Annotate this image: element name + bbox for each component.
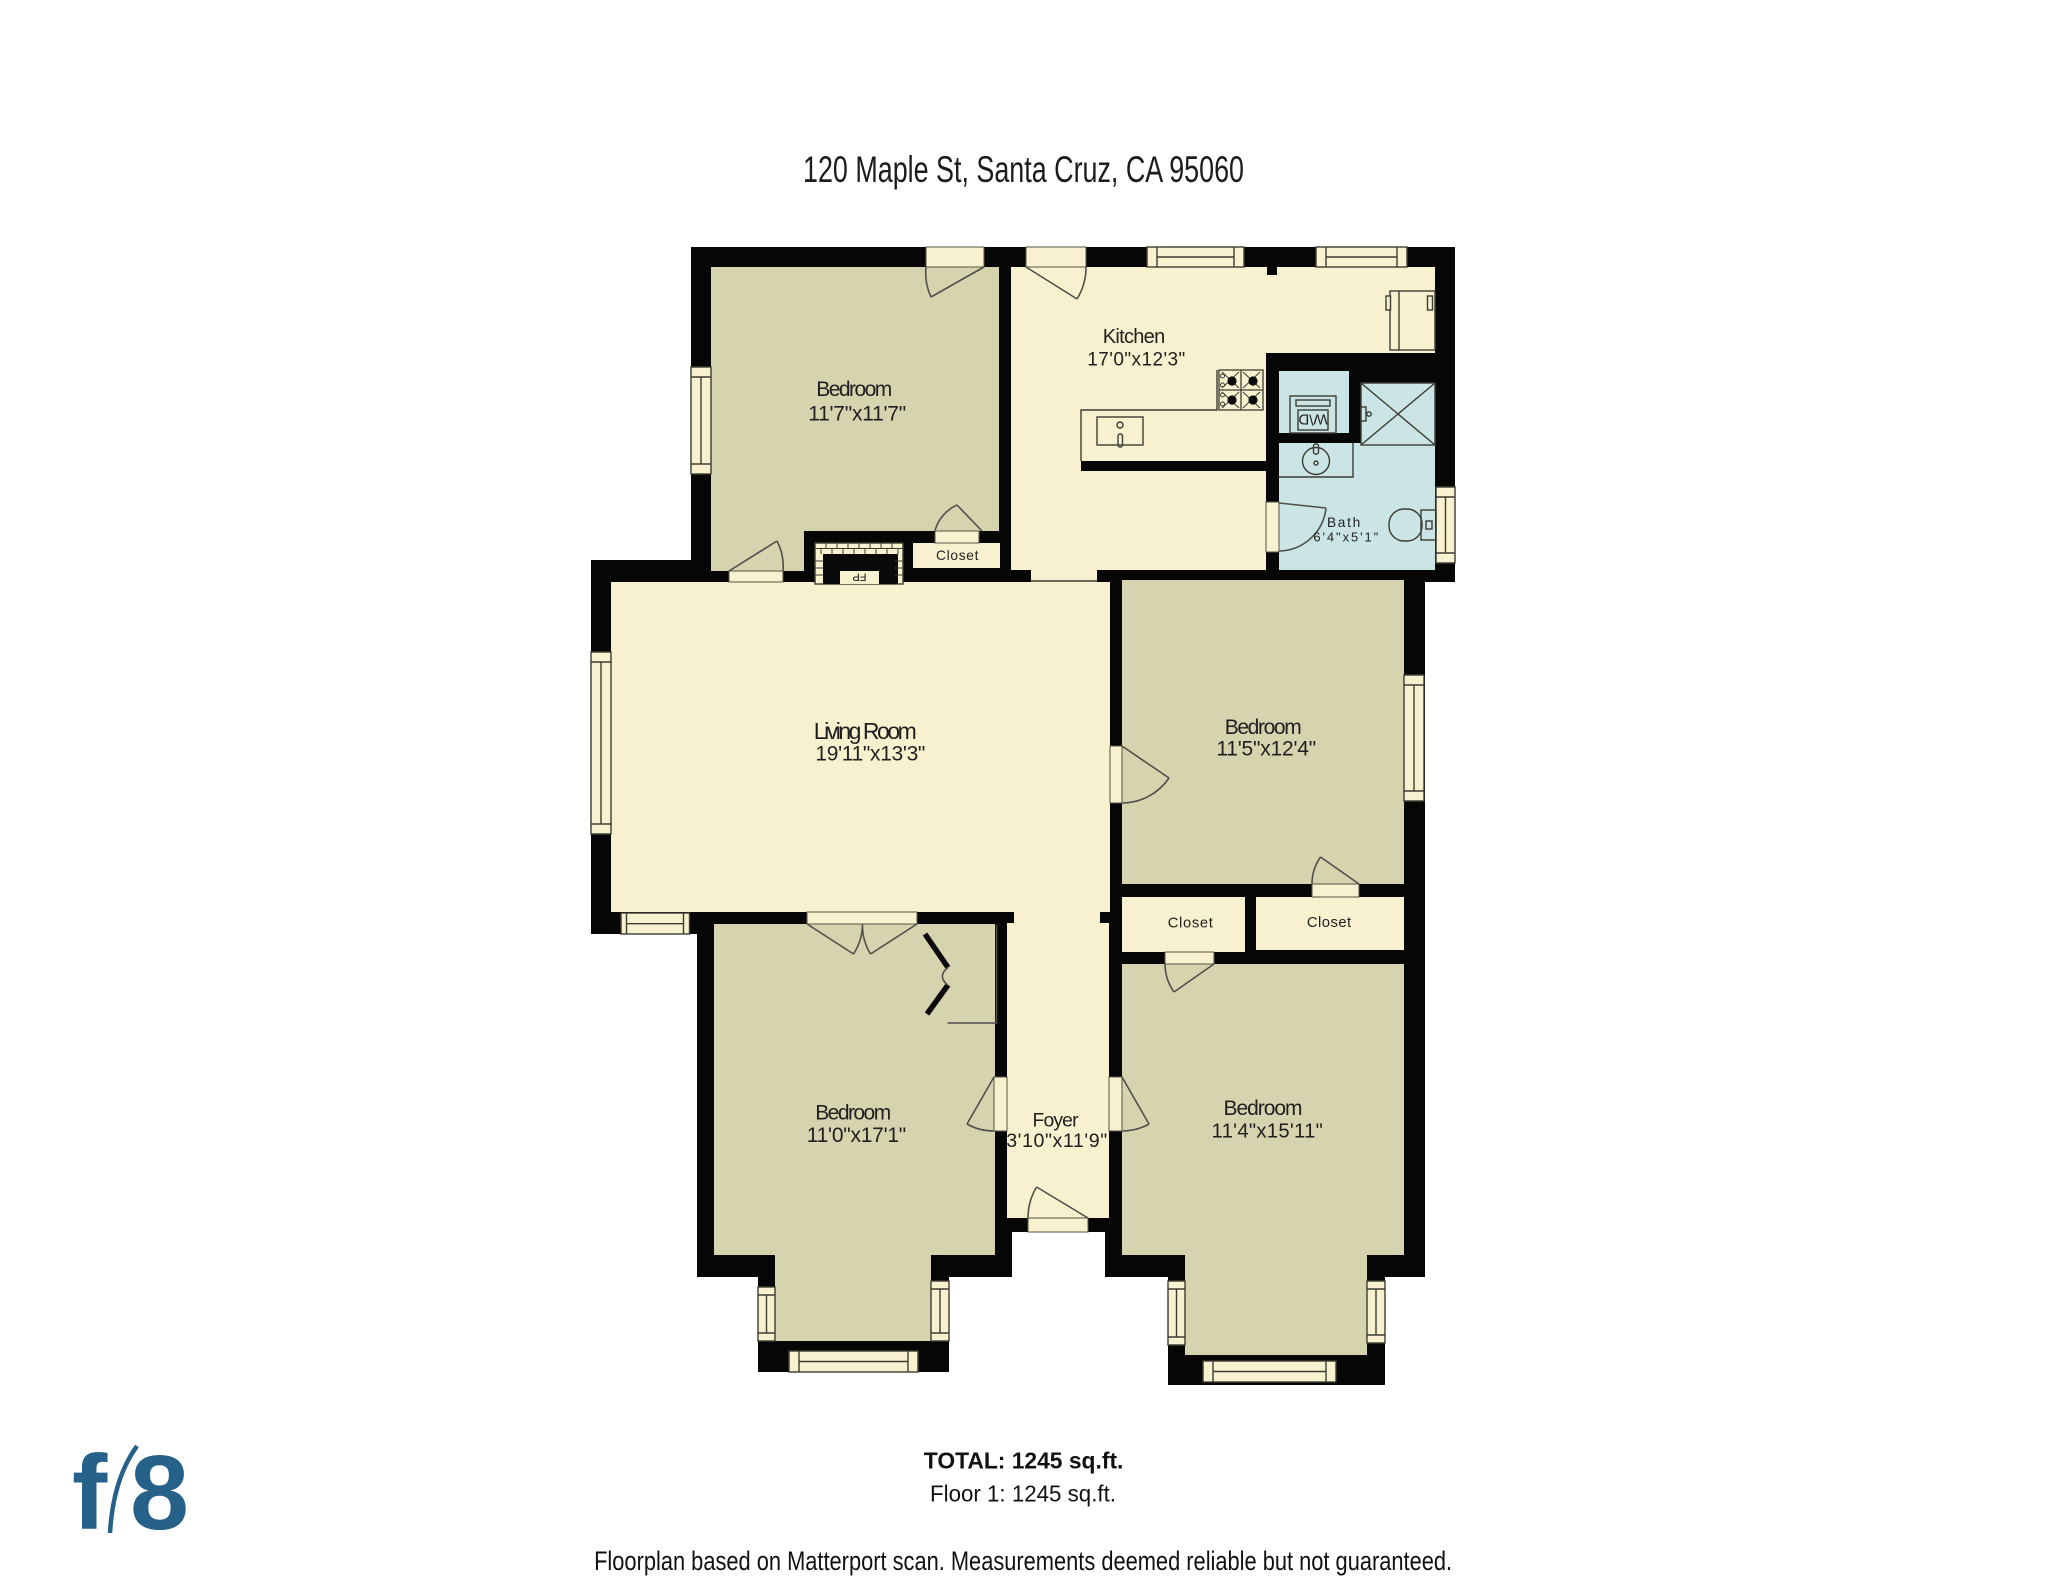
svg-text:Living Room: Living Room bbox=[814, 718, 917, 744]
svg-text:TOTAL: 1245 sq.ft.: TOTAL: 1245 sq.ft. bbox=[924, 1448, 1124, 1474]
svg-text:Floor 1: 1245 sq.ft.: Floor 1: 1245 sq.ft. bbox=[930, 1481, 1116, 1507]
svg-text:Bath: Bath bbox=[1327, 515, 1360, 530]
svg-text:Bedroom: Bedroom bbox=[1224, 1097, 1303, 1120]
svg-text:Bedroom: Bedroom bbox=[815, 1102, 891, 1125]
svg-text:6'4"x5'1": 6'4"x5'1" bbox=[1313, 530, 1378, 545]
svg-text:3'10"x11'9": 3'10"x11'9" bbox=[1006, 1130, 1107, 1152]
svg-text:W\D: W\D bbox=[1298, 411, 1327, 428]
svg-text:Closet: Closet bbox=[936, 548, 979, 563]
svg-text:Bedroom: Bedroom bbox=[1225, 716, 1302, 739]
svg-text:11'5"x12'4": 11'5"x12'4" bbox=[1216, 738, 1316, 761]
svg-text:f: f bbox=[72, 1434, 108, 1552]
svg-text:FP: FP bbox=[852, 571, 866, 583]
svg-text:8: 8 bbox=[130, 1434, 189, 1552]
svg-text:11'0"x17'1": 11'0"x17'1" bbox=[807, 1124, 907, 1147]
svg-text:Closet: Closet bbox=[1168, 916, 1213, 932]
svg-text:Kitchen: Kitchen bbox=[1103, 326, 1165, 348]
svg-text:Floorplan based on Matterport: Floorplan based on Matterport scan. Meas… bbox=[594, 1546, 1452, 1576]
svg-text:120 Maple St, Santa Cruz, CA 9: 120 Maple St, Santa Cruz, CA 95060 bbox=[803, 149, 1244, 190]
svg-text:Closet: Closet bbox=[1307, 915, 1351, 931]
svg-text:11'4"x15'11": 11'4"x15'11" bbox=[1212, 1121, 1323, 1143]
svg-text:11'7"x11'7": 11'7"x11'7" bbox=[808, 402, 906, 425]
svg-text:19'11"x13'3": 19'11"x13'3" bbox=[815, 743, 925, 766]
svg-text:Bedroom: Bedroom bbox=[816, 378, 892, 401]
svg-text:17'0"x12'3": 17'0"x12'3" bbox=[1087, 349, 1185, 370]
svg-text:Foyer: Foyer bbox=[1033, 1110, 1080, 1131]
